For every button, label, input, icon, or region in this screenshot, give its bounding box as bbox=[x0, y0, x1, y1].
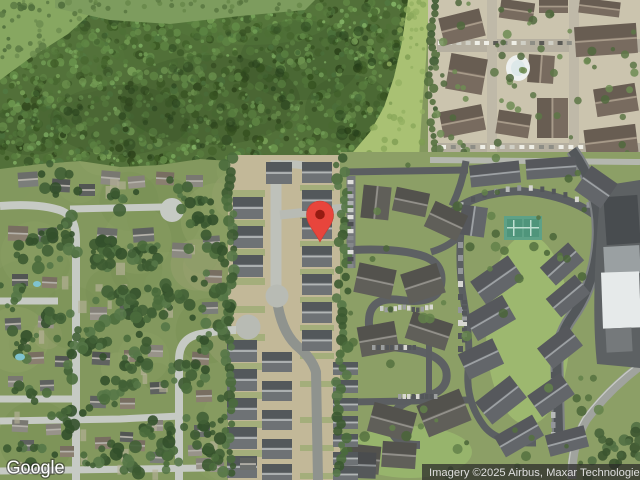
svg-text:Google: Google bbox=[7, 458, 65, 478]
svg-text:Imagery ©2025 Airbus, Maxar Te: Imagery ©2025 Airbus, Maxar Technologies bbox=[429, 467, 640, 479]
